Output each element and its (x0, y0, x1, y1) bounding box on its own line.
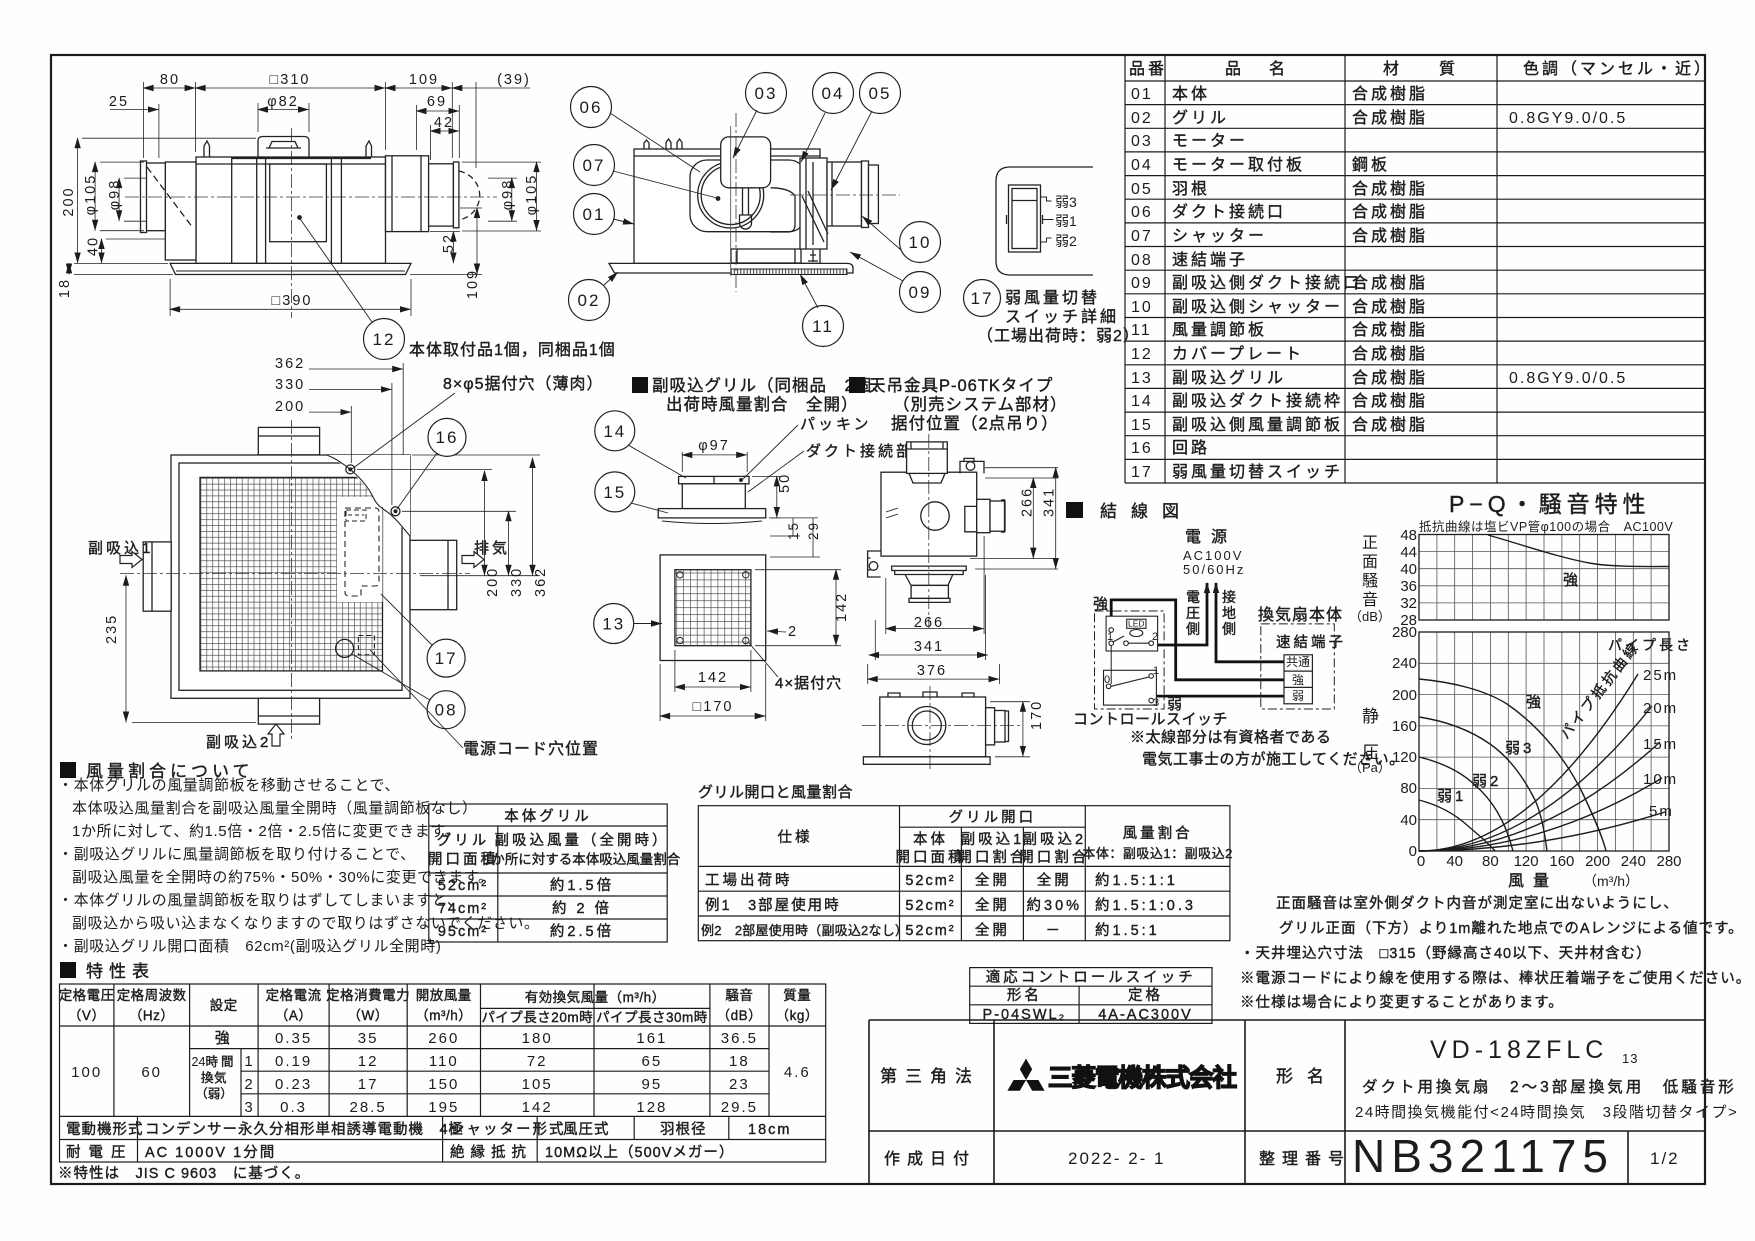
svg-text:共通: 共通 (1286, 655, 1310, 669)
svg-text:副吸込側シャッター: 副吸込側シャッター (1172, 298, 1343, 316)
svg-text:200: 200 (1585, 853, 1610, 870)
svg-text:(39): (39) (497, 72, 531, 88)
svg-text:合成樹脂: 合成樹脂 (1352, 85, 1428, 103)
svg-text:約 2 倍: 約 2 倍 (552, 900, 612, 917)
svg-text:170: 170 (1029, 700, 1045, 730)
svg-text:φ82: φ82 (267, 94, 299, 110)
svg-text:合成樹脂: 合成樹脂 (1352, 416, 1428, 434)
svg-text:強: 強 (215, 1030, 233, 1047)
svg-text:0: 0 (1417, 853, 1425, 870)
svg-text:本体: 本体 (1172, 85, 1210, 103)
svg-text:142: 142 (522, 1099, 553, 1116)
svg-text:工場出荷時: 工場出荷時 (705, 872, 793, 889)
svg-text:合成樹脂: 合成樹脂 (1352, 203, 1428, 221)
svg-text:08: 08 (435, 701, 458, 720)
svg-text:341: 341 (914, 639, 944, 655)
svg-text:開口面積: 開口面積 (896, 849, 966, 866)
svg-text:グリル開口と風量割合: グリル開口と風量割合 (698, 784, 853, 801)
svg-text:48: 48 (1400, 527, 1417, 544)
svg-text:弱風量切替: 弱風量切替 (1005, 289, 1100, 307)
svg-text:絶縁抵抗: 絶縁抵抗 (450, 1144, 532, 1161)
svg-text:φ105: φ105 (83, 174, 99, 216)
svg-text:副吸込1: 副吸込1 (88, 540, 153, 557)
svg-text:（W）: （W） (347, 1008, 388, 1023)
svg-text:強: 強 (1563, 572, 1581, 589)
svg-text:弱2: 弱2 (1055, 233, 1077, 249)
svg-text:ダクト用換気扇 2〜3部屋換気用 低騒音形: ダクト用換気扇 2〜3部屋換気用 低騒音形 (1362, 1078, 1737, 1096)
svg-text:結線図: 結線図 (1100, 502, 1193, 521)
svg-text:騒音: 騒音 (725, 987, 753, 1003)
svg-text:定格消費電力: 定格消費電力 (326, 988, 410, 1003)
svg-text:全開: 全開 (1037, 871, 1072, 889)
svg-text:風量調節板: 風量調節板 (1172, 321, 1267, 339)
svg-text:品名: 品名 (1225, 60, 1313, 78)
svg-text:1か所に対して、約1.5倍・2倍・2.5倍に変更できます。: 1か所に対して、約1.5倍・2倍・2.5倍に変更できます。 (72, 823, 460, 840)
svg-text:3: 3 (244, 1099, 254, 1116)
svg-text:パッキン: パッキン (800, 416, 872, 433)
svg-text:100: 100 (71, 1064, 102, 1081)
svg-text:15: 15 (786, 521, 801, 540)
svg-text:80: 80 (160, 72, 180, 88)
svg-text:羽根: 羽根 (1172, 180, 1210, 198)
svg-text:69: 69 (427, 94, 447, 110)
svg-text:（kg）: （kg） (776, 1008, 819, 1023)
svg-text:開口割合: 開口割合 (1019, 849, 1089, 866)
svg-text:50/60Hz: 50/60Hz (1183, 562, 1245, 577)
svg-text:定格電圧: 定格電圧 (59, 988, 115, 1003)
svg-text:120: 120 (1392, 749, 1417, 766)
svg-text:160: 160 (1549, 853, 1574, 870)
svg-text:52: 52 (441, 233, 457, 253)
svg-text:280: 280 (1392, 624, 1417, 641)
svg-text:0: 0 (1104, 674, 1110, 686)
svg-text:約1.5:1:0.3: 約1.5:1:0.3 (1095, 897, 1196, 914)
svg-text:速結端子: 速結端子 (1276, 634, 1346, 651)
svg-text:・副吸込グリル開口面積 62cm²(副吸込グリル全開時): ・副吸込グリル開口面積 62cm²(副吸込グリル全開時) (58, 937, 441, 955)
svg-text:0.3: 0.3 (280, 1099, 307, 1116)
svg-text:LED: LED (1128, 619, 1145, 629)
svg-text:08: 08 (1131, 252, 1153, 269)
svg-text:200: 200 (275, 399, 305, 415)
svg-text:109: 109 (409, 72, 439, 88)
svg-text:2: 2 (244, 1076, 254, 1093)
svg-text:150: 150 (428, 1076, 459, 1093)
svg-text:11: 11 (812, 317, 834, 336)
svg-text:形名: 形名 (1007, 987, 1042, 1004)
svg-text:50: 50 (777, 473, 793, 493)
svg-text:副吸込側ダクト接続口: 副吸込側ダクト接続口 (1172, 274, 1362, 292)
svg-text:天吊金具P-06TKタイプ: 天吊金具P-06TKタイプ (869, 376, 1053, 395)
svg-text:0.8GY9.0/0.5: 0.8GY9.0/0.5 (1509, 370, 1627, 387)
svg-text:02: 02 (578, 291, 601, 310)
svg-text:定格電流: 定格電流 (266, 988, 322, 1003)
svg-text:1/2: 1/2 (1650, 1149, 1680, 1168)
svg-text:合成樹脂: 合成樹脂 (1352, 369, 1428, 387)
svg-text:4×据付穴: 4×据付穴 (775, 675, 842, 692)
svg-text:静: 静 (1362, 707, 1379, 726)
svg-text:鋼板: 鋼板 (1352, 156, 1390, 174)
svg-text:4.6: 4.6 (784, 1064, 811, 1081)
svg-text:200: 200 (1392, 687, 1417, 704)
svg-text:14: 14 (1131, 393, 1153, 410)
svg-text:（工場出荷時：弱2）: （工場出荷時：弱2） (977, 327, 1140, 345)
svg-text:（A）: （A） (275, 1008, 313, 1023)
svg-text:80: 80 (1400, 780, 1417, 797)
svg-text:開口割合: 開口割合 (957, 849, 1027, 866)
svg-text:200: 200 (485, 567, 501, 597)
svg-text:※特性は JIS C 9603 に基づく。: ※特性は JIS C 9603 に基づく。 (58, 1165, 310, 1182)
svg-text:約1.5:1:1: 約1.5:1:1 (1095, 872, 1178, 889)
svg-text:330: 330 (509, 567, 525, 597)
svg-text:グリル開口: グリル開口 (949, 809, 1037, 826)
svg-text:12: 12 (358, 1053, 379, 1070)
svg-text:合成樹脂: 合成樹脂 (1352, 392, 1428, 410)
svg-text:06: 06 (580, 98, 603, 117)
svg-text:AC 1000V 1分間: AC 1000V 1分間 (145, 1144, 276, 1161)
svg-text:01: 01 (583, 205, 606, 224)
svg-text:142: 142 (834, 592, 850, 622)
svg-text:15m: 15m (1643, 736, 1678, 753)
svg-text:・天井埋込穴寸法 □315（野縁高さ40以下、天井材含む）: ・天井埋込穴寸法 □315（野縁高さ40以下、天井材含む） (1240, 945, 1652, 962)
svg-text:04: 04 (1131, 157, 1153, 174)
svg-text:約30%: 約30% (1027, 897, 1083, 914)
svg-text:全開: 全開 (975, 896, 1010, 914)
svg-text:抵抗曲線は塩ビVP管φ100の場合 AC100V: 抵抗曲線は塩ビVP管φ100の場合 AC100V (1419, 519, 1673, 534)
svg-text:副吸込グリル: 副吸込グリル (1172, 369, 1286, 387)
svg-text:362: 362 (275, 356, 305, 372)
svg-text:362: 362 (533, 567, 549, 597)
svg-text:コンデンサー永久分相形単相誘導電動機 4極: コンデンサー永久分相形単相誘導電動機 4極 (145, 1120, 464, 1138)
svg-text:□390: □390 (272, 293, 313, 309)
svg-text:2: 2 (1152, 631, 1158, 643)
svg-text:23: 23 (729, 1076, 750, 1093)
svg-text:強: 強 (1526, 694, 1544, 711)
svg-text:（Hz）: （Hz） (129, 1008, 175, 1023)
svg-text:52cm²: 52cm² (905, 873, 955, 889)
svg-text:換気: 換気 (201, 1070, 227, 1085)
svg-text:開放風量: 開放風量 (416, 988, 472, 1003)
svg-text:1: 1 (1153, 665, 1159, 677)
svg-text:195: 195 (428, 1099, 459, 1116)
svg-text:仕様: 仕様 (778, 829, 813, 846)
svg-text:本体：副吸込1：副吸込2: 本体：副吸込1：副吸込2 (1082, 846, 1232, 861)
svg-text:本体: 本体 (913, 831, 948, 848)
svg-text:約1.5:1: 約1.5:1 (1095, 922, 1160, 939)
svg-text:例2 2部屋使用時（副吸込2なし）: 例2 2部屋使用時（副吸込2なし） (701, 923, 908, 938)
svg-text:ダクト接続部: ダクト接続部 (806, 443, 914, 460)
svg-text:40: 40 (86, 236, 102, 256)
svg-text:定格: 定格 (1128, 987, 1163, 1004)
svg-text:60: 60 (141, 1064, 162, 1081)
svg-text:18: 18 (729, 1053, 750, 1070)
svg-text:105: 105 (522, 1076, 553, 1093)
svg-text:側: 側 (1186, 621, 1203, 637)
svg-text:40: 40 (1446, 853, 1463, 870)
svg-text:36: 36 (1400, 578, 1417, 595)
svg-text:01: 01 (1131, 86, 1153, 103)
svg-text:副吸込1: 副吸込1 (961, 831, 1025, 848)
svg-text:弱2: 弱2 (1472, 773, 1501, 790)
svg-text:235: 235 (104, 614, 120, 644)
svg-text:電動機形式: 電動機形式 (66, 1121, 144, 1138)
svg-text:1か所に対する本体吸込風量割合: 1か所に対する本体吸込風量割合 (484, 851, 681, 867)
svg-text:（別売システム部材）: （別売システム部材） (893, 395, 1068, 414)
svg-text:24時間換気機能付<24時間換気 3段階切替タイプ>: 24時間換気機能付<24時間換気 3段階切替タイプ> (1355, 1104, 1738, 1121)
svg-text:材質: 材質 (1383, 60, 1495, 78)
svg-text:15: 15 (1131, 417, 1153, 434)
svg-text:17: 17 (971, 289, 994, 308)
svg-text:正面騒音は室外側ダクト内音が測定室に出ないようにし、: 正面騒音は室外側ダクト内音が測定室に出ないようにし、 (1276, 895, 1679, 912)
svg-text:04: 04 (822, 84, 845, 103)
svg-text:換気扇本体: 換気扇本体 (1258, 606, 1343, 624)
svg-text:作成日付: 作成日付 (884, 1150, 976, 1168)
svg-text:13: 13 (1622, 1051, 1638, 1066)
svg-text:正: 正 (1362, 535, 1378, 552)
svg-text:110: 110 (429, 1053, 459, 1070)
svg-text:03: 03 (1131, 133, 1153, 150)
svg-text:電源コード穴位置: 電源コード穴位置 (463, 740, 599, 758)
svg-text:風圧式: 風圧式 (563, 1121, 610, 1138)
svg-text:72: 72 (527, 1053, 548, 1070)
svg-text:合成樹脂: 合成樹脂 (1352, 298, 1428, 316)
svg-text:8×φ5据付穴（薄肉）: 8×φ5据付穴（薄肉） (443, 375, 604, 393)
svg-text:弱3: 弱3 (1505, 740, 1534, 757)
svg-text:φ98: φ98 (500, 179, 516, 211)
svg-text:24時間: 24時間 (192, 1055, 237, 1069)
svg-text:128: 128 (636, 1099, 667, 1116)
svg-text:副吸込ダクト接続枠: 副吸込ダクト接続枠 (1172, 392, 1343, 410)
svg-text:グリル: グリル (1172, 109, 1229, 127)
svg-text:圧: 圧 (1186, 605, 1203, 621)
svg-text:強: 強 (1292, 673, 1304, 687)
svg-text:弱: 弱 (1292, 689, 1304, 703)
svg-text:266: 266 (1019, 487, 1035, 517)
svg-text:シャッター: シャッター (1172, 227, 1267, 245)
svg-text:特性表: 特性表 (86, 962, 155, 981)
svg-text:グリル正面（下方）より1m離れた地点でのAレンジによる値です: グリル正面（下方）より1m離れた地点でのAレンジによる値です。 (1279, 919, 1744, 937)
svg-text:弱1: 弱1 (1437, 788, 1466, 805)
svg-text:・副吸込グリルに風量調節板を取り付けることで、: ・副吸込グリルに風量調節板を取り付けることで、 (58, 845, 416, 863)
svg-text:副吸込風量（全開時）: 副吸込風量（全開時） (495, 831, 670, 849)
svg-text:20m: 20m (1643, 700, 1678, 717)
svg-text:モーター取付板: モーター取付板 (1172, 156, 1305, 174)
svg-text:羽根径: 羽根径 (660, 1121, 707, 1138)
svg-text:パイプ長さ30m時: パイプ長さ30m時 (596, 1010, 708, 1025)
svg-text:合成樹脂: 合成樹脂 (1352, 227, 1428, 245)
svg-text:地: 地 (1222, 605, 1239, 621)
svg-text:合成樹脂: 合成樹脂 (1352, 345, 1428, 363)
svg-text:160: 160 (1392, 718, 1417, 735)
svg-text:161: 161 (636, 1030, 667, 1047)
svg-text:グリル: グリル (437, 832, 490, 849)
svg-text:10: 10 (909, 233, 932, 252)
svg-text:据付位置（2点吊り）: 据付位置（2点吊り） (891, 414, 1059, 433)
svg-text:10MΩ以上（500Vメガー）: 10MΩ以上（500Vメガー） (545, 1144, 734, 1161)
svg-text:耐電圧: 耐電圧 (66, 1144, 134, 1161)
svg-text:合成樹脂: 合成樹脂 (1352, 180, 1428, 198)
svg-text:（弱）: （弱） (195, 1087, 233, 1101)
svg-text:03: 03 (755, 84, 778, 103)
svg-text:341: 341 (1042, 487, 1058, 517)
svg-text:（V）: （V） (68, 1008, 106, 1023)
svg-text:パイプ長さ20m時: パイプ長さ20m時 (481, 1010, 593, 1025)
svg-text:17: 17 (1131, 464, 1153, 481)
svg-text:13: 13 (602, 615, 625, 634)
svg-text:約2.5倍: 約2.5倍 (550, 923, 614, 940)
svg-text:10m: 10m (1643, 771, 1678, 788)
svg-text:240: 240 (1392, 655, 1417, 672)
svg-text:第三角法: 第三角法 (880, 1067, 980, 1086)
svg-text:32: 32 (1400, 595, 1417, 612)
svg-text:全開: 全開 (975, 871, 1010, 889)
svg-text:例1 3部屋使用時: 例1 3部屋使用時 (705, 897, 841, 914)
svg-text:09: 09 (909, 283, 932, 302)
svg-text:質量: 質量 (783, 988, 811, 1003)
svg-text:95cm²: 95cm² (438, 924, 488, 940)
svg-text:3: 3 (1153, 697, 1159, 709)
svg-text:12: 12 (1131, 346, 1153, 363)
svg-text:07: 07 (1131, 228, 1153, 245)
svg-text:40: 40 (1400, 812, 1417, 829)
svg-text:副吸込風量を全開時の約75%・50%・30%に変更できます。: 副吸込風量を全開時の約75%・50%・30%に変更できます。 (72, 868, 494, 886)
svg-text:電源: 電源 (1185, 528, 1237, 546)
svg-text:スイッチ詳細: スイッチ詳細 (1005, 308, 1119, 326)
svg-text:φ97: φ97 (698, 438, 730, 454)
svg-text:－: － (1046, 923, 1064, 939)
svg-text:本体取付品1個，同梱品1個: 本体取付品1個，同梱品1個 (409, 341, 616, 359)
svg-text:コントロールスイッチ: コントロールスイッチ (1073, 711, 1228, 728)
svg-text:本体吸込風量割合を副吸込風量全開時（風量調節板なし）: 本体吸込風量割合を副吸込風量全開時（風量調節板なし） (72, 799, 478, 817)
svg-text:28.5: 28.5 (349, 1099, 386, 1116)
svg-text:05: 05 (869, 84, 892, 103)
svg-text:約1.5倍: 約1.5倍 (550, 877, 614, 894)
svg-text:80: 80 (1482, 853, 1499, 870)
svg-text:弱風量切替スイッチ: 弱風量切替スイッチ (1172, 463, 1343, 481)
svg-text:74cm²: 74cm² (438, 901, 488, 917)
svg-text:2022- 2- 1: 2022- 2- 1 (1068, 1149, 1166, 1168)
svg-text:VD-18ZFLC: VD-18ZFLC (1430, 1036, 1608, 1064)
svg-text:速結端子: 速結端子 (1172, 251, 1248, 269)
svg-text:1: 1 (244, 1053, 254, 1070)
svg-text:面: 面 (1362, 554, 1378, 571)
svg-text:風量割合: 風量割合 (1123, 825, 1193, 842)
svg-text:側: 側 (1222, 621, 1239, 637)
svg-text:5m: 5m (1649, 803, 1674, 820)
svg-text:42: 42 (434, 115, 454, 131)
svg-text:NB321175: NB321175 (1352, 1130, 1614, 1182)
svg-text:φ105: φ105 (524, 174, 540, 216)
svg-text:※仕様は場合により変更することがあります。: ※仕様は場合により変更することがあります。 (1240, 994, 1564, 1011)
svg-text:40: 40 (1400, 561, 1417, 578)
svg-text:適応コントロールスイッチ: 適応コントロールスイッチ (986, 968, 1196, 986)
svg-text:副吸込2: 副吸込2 (1023, 831, 1087, 848)
svg-text:95: 95 (642, 1076, 663, 1093)
svg-text:0.23: 0.23 (275, 1076, 312, 1093)
svg-text:376: 376 (917, 663, 947, 679)
svg-text:16: 16 (1131, 440, 1153, 457)
svg-text:定格周波数: 定格周波数 (117, 988, 187, 1003)
svg-text:本体グリル: 本体グリル (504, 808, 592, 825)
svg-text:弱3: 弱3 (1055, 194, 1077, 210)
svg-text:音: 音 (1362, 591, 1378, 609)
svg-text:副吸込側風量調節板: 副吸込側風量調節板 (1172, 416, 1343, 434)
svg-text:16: 16 (436, 428, 459, 447)
svg-text:（dB）: （dB） (1349, 609, 1391, 624)
svg-text:0.8GY9.0/0.5: 0.8GY9.0/0.5 (1509, 110, 1627, 127)
svg-text:14: 14 (603, 422, 626, 441)
svg-text:排気: 排気 (474, 540, 510, 557)
svg-text:※太線部分は有資格者である: ※太線部分は有資格者である (1130, 729, 1331, 746)
svg-text:06: 06 (1131, 204, 1153, 221)
svg-text:2: 2 (788, 624, 796, 640)
svg-text:AC100V: AC100V (1183, 548, 1243, 563)
svg-text:接: 接 (1222, 589, 1239, 605)
svg-text:品番: 品番 (1129, 60, 1167, 78)
svg-text:色調（マンセル・近）: 色調（マンセル・近） (1523, 60, 1713, 78)
svg-text:合成樹脂: 合成樹脂 (1352, 321, 1428, 339)
svg-text:ダクト接続口: ダクト接続口 (1172, 203, 1286, 221)
svg-text:φ98: φ98 (107, 179, 123, 211)
svg-text:□170: □170 (693, 699, 734, 715)
svg-text:35: 35 (358, 1030, 379, 1047)
svg-text:44: 44 (1400, 544, 1417, 561)
svg-text:0.35: 0.35 (275, 1030, 312, 1047)
svg-text:07: 07 (583, 156, 606, 175)
svg-text:65: 65 (642, 1053, 663, 1070)
svg-text:180: 180 (522, 1030, 553, 1047)
svg-text:整理番号: 整理番号 (1259, 1150, 1351, 1168)
svg-text:副吸込2: 副吸込2 (206, 734, 271, 751)
svg-text:17: 17 (435, 649, 458, 668)
svg-text:0.19: 0.19 (275, 1053, 312, 1070)
svg-text:13: 13 (1131, 370, 1153, 387)
svg-text:回路: 回路 (1172, 439, 1210, 457)
svg-text:200: 200 (61, 186, 77, 216)
svg-text:強: 強 (1093, 596, 1111, 613)
svg-text:52cm²: 52cm² (905, 898, 955, 914)
svg-text:騒: 騒 (1362, 572, 1378, 590)
svg-text:電: 電 (1186, 589, 1203, 605)
svg-text:25: 25 (109, 94, 129, 110)
svg-text:※電源コードにより線を使用する際は、棒状圧着端子をご使用くだ: ※電源コードにより線を使用する際は、棒状圧着端子をご使用ください。 (1240, 970, 1751, 987)
svg-text:12: 12 (373, 330, 396, 349)
svg-text:弱1: 弱1 (1055, 213, 1077, 229)
svg-text:・本体グリルの風量調節板を移動させることで、: ・本体グリルの風量調節板を移動させることで、 (58, 776, 400, 794)
svg-text:□310: □310 (270, 72, 311, 88)
svg-text:設定: 設定 (210, 998, 238, 1013)
svg-text:P−Q・騒音特性: P−Q・騒音特性 (1449, 491, 1651, 517)
svg-text:（Pa）: （Pa） (1349, 760, 1391, 775)
svg-text:17: 17 (358, 1076, 379, 1093)
svg-text:合成樹脂: 合成樹脂 (1352, 274, 1428, 292)
svg-text:・本体グリルの風量調節板を取りはずしてしまいますと、: ・本体グリルの風量調節板を取りはずしてしまいますと、 (58, 891, 463, 909)
svg-text:05: 05 (1131, 181, 1153, 198)
svg-text:02: 02 (1131, 110, 1153, 127)
svg-text:52cm²: 52cm² (905, 923, 955, 939)
svg-text:有効換気風量（m³/h）: 有効換気風量（m³/h） (525, 990, 666, 1005)
svg-text:11: 11 (1131, 322, 1152, 339)
svg-text:出荷時風量割合 全開）: 出荷時風量割合 全開） (666, 395, 859, 414)
svg-text:109: 109 (465, 269, 481, 299)
svg-text:29: 29 (806, 521, 821, 540)
svg-text:36.5: 36.5 (721, 1030, 758, 1047)
svg-text:18cm: 18cm (748, 1122, 791, 1138)
svg-text:合成樹脂: 合成樹脂 (1352, 109, 1428, 127)
svg-text:全開: 全開 (975, 921, 1010, 939)
svg-text:（dB）: （dB） (717, 1008, 763, 1023)
svg-text:09: 09 (1131, 275, 1153, 292)
svg-text:風量: 風量 (1508, 873, 1558, 890)
